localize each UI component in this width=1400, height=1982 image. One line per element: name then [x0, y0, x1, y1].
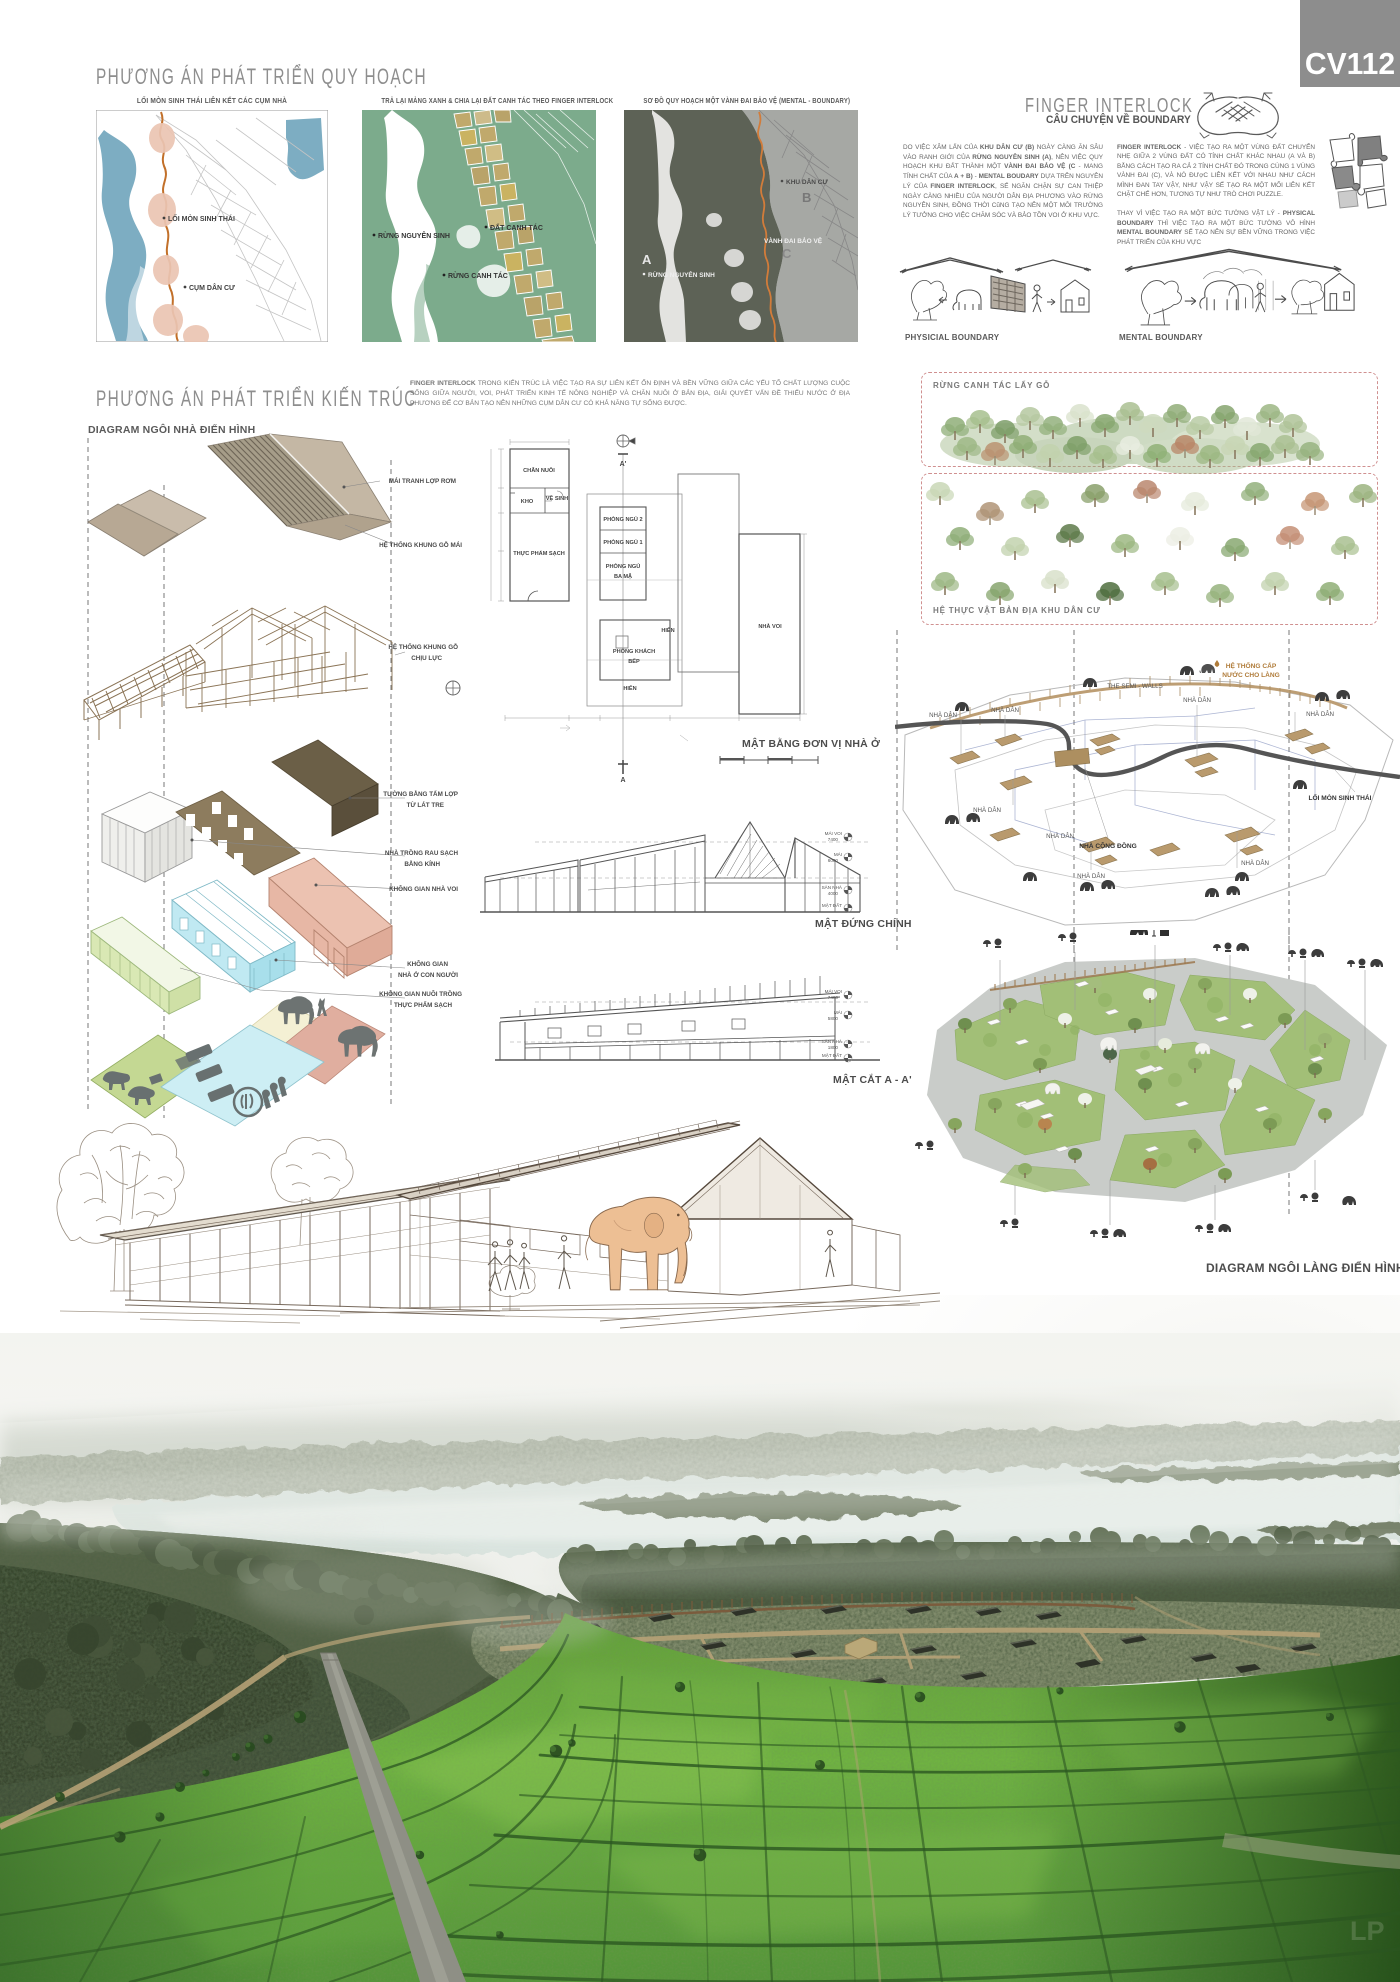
svg-text:SÀN NHÀ: SÀN NHÀ [822, 884, 843, 890]
svg-text:BẰNG KÍNH: BẰNG KÍNH [404, 859, 440, 868]
svg-text:NHÀ DÂN: NHÀ DÂN [1046, 833, 1074, 840]
svg-text:7400: 7400 [828, 837, 839, 842]
svg-text:5800: 5800 [828, 1016, 839, 1021]
svg-text:NƯỚC CHO LÀNG: NƯỚC CHO LÀNG [1222, 670, 1280, 679]
svg-text:NHÀ DÂN: NHÀ DÂN [1306, 711, 1334, 718]
svg-text:NHÀ VOI: NHÀ VOI [758, 623, 782, 630]
svg-text:PHÒNG NGỦ 2: PHÒNG NGỦ 2 [603, 515, 642, 523]
svg-text:A': A' [620, 461, 627, 468]
svg-text:HIÊN: HIÊN [661, 626, 674, 634]
svg-text:B: B [802, 190, 811, 205]
svg-text:A: A [620, 777, 625, 784]
svg-text:RỪNG NGUYÊN SINH: RỪNG NGUYÊN SINH [378, 231, 450, 240]
svg-text:6000: 6000 [828, 858, 839, 863]
svg-text:KHU DÂN CƯ: KHU DÂN CƯ [786, 177, 828, 186]
svg-text:CỤM DÂN CƯ: CỤM DÂN CƯ [189, 283, 235, 292]
svg-text:PHÒNG NGỦ: PHÒNG NGỦ [606, 562, 641, 570]
svg-text:C: C [782, 246, 792, 261]
svg-text:PHÒNG KHÁCH: PHÒNG KHÁCH [613, 647, 655, 655]
svg-text:KHO: KHO [521, 499, 534, 505]
svg-text:4000: 4000 [828, 891, 839, 896]
svg-text:THE SEMI - WALLS: THE SEMI - WALLS [1107, 683, 1162, 690]
svg-text:NHÀ DÂN: NHÀ DÂN [1183, 697, 1211, 704]
svg-text:NHÀ DÂN: NHÀ DÂN [973, 807, 1001, 814]
svg-text:TỪ LÁT TRE: TỪ LÁT TRE [407, 800, 444, 809]
svg-text:LỐI MÒN SINH THÁI: LỐI MÒN SINH THÁI [1308, 792, 1371, 802]
svg-text:NHÀ DÂN: NHÀ DÂN [1077, 873, 1105, 880]
svg-text:NHÀ DÂN: NHÀ DÂN [1241, 860, 1269, 867]
svg-text:MẬT ĐẤT: MẬT ĐẤT [822, 1052, 842, 1058]
svg-text:MÁI: MÁI [834, 1009, 842, 1015]
svg-text:BA MẶ: BA MẶ [614, 573, 632, 580]
svg-text:NHÀ DÂN: NHÀ DÂN [991, 707, 1019, 714]
svg-text:7400: 7400 [828, 995, 839, 1000]
svg-text:VỆ SINH: VỆ SINH [546, 494, 568, 502]
svg-text:1800: 1800 [828, 1045, 839, 1050]
svg-text:MÁI: MÁI [834, 851, 842, 857]
svg-text:BẾP: BẾP [628, 658, 640, 665]
svg-text:A: A [642, 252, 652, 267]
svg-text:RỪNG CANH TÁC: RỪNG CANH TÁC [448, 271, 508, 280]
svg-text:RỪNG NGUYÊN SINH: RỪNG NGUYÊN SINH [648, 270, 715, 279]
svg-text:SÀN NHÀ: SÀN NHÀ [822, 1038, 843, 1044]
svg-text:MÁI VOI: MÁI VOI [825, 830, 842, 836]
svg-text:HIÊN: HIÊN [623, 684, 636, 692]
svg-text:CHỊU LỰC: CHỊU LỰC [411, 655, 442, 662]
svg-text:THỰC PHẨM SẠCH: THỰC PHẨM SẠCH [513, 550, 565, 557]
svg-text:PHÒNG NGỦ 1: PHÒNG NGỦ 1 [603, 538, 642, 546]
svg-text:HỆ THỐNG CẤP: HỆ THỐNG CẤP [1226, 660, 1277, 670]
svg-text:CHĂN NUÔI: CHĂN NUÔI [523, 466, 555, 474]
svg-text:NHÀ DÂN: NHÀ DÂN [929, 712, 957, 719]
svg-text:MẬT ĐẤT: MẬT ĐẤT [822, 902, 842, 908]
svg-text:VÀNH ĐAI BẢO VỆ: VÀNH ĐAI BẢO VỆ [764, 236, 823, 245]
svg-text:MÁI VOI: MÁI VOI [825, 988, 842, 994]
svg-text:LP: LP [1350, 1916, 1385, 1946]
